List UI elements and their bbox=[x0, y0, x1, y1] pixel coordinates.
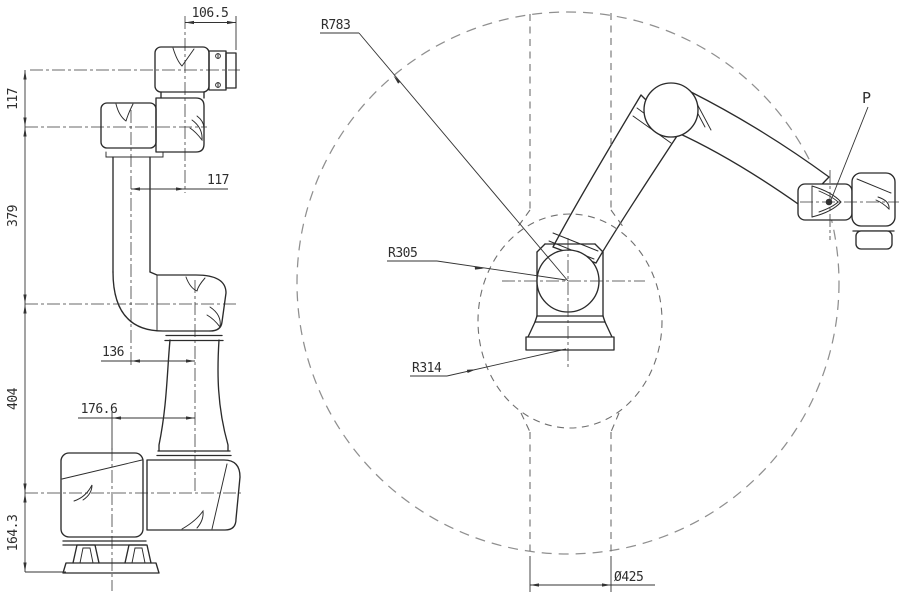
dim-label-379: 379 bbox=[6, 205, 21, 227]
label-inner-radius-upper: R305 bbox=[388, 246, 417, 261]
dim-label-176-6: 176.6 bbox=[81, 402, 118, 417]
label-tool-point: P bbox=[862, 89, 871, 107]
side-view-centerlines bbox=[25, 16, 241, 591]
side-view-forearm-link bbox=[113, 157, 150, 272]
dim-label-117-vertical: 117 bbox=[6, 88, 21, 110]
side-view: 117 379 404 164.3 106.5 117 136 bbox=[6, 6, 241, 591]
side-view-base bbox=[61, 453, 240, 573]
robot-dimension-drawing: 117 379 404 164.3 106.5 117 136 bbox=[0, 0, 900, 600]
workspace-annotations: R783 R305 R314 P Ø425 bbox=[320, 18, 871, 592]
side-view-dimensions: 117 379 404 164.3 106.5 117 136 bbox=[6, 6, 236, 572]
label-column-diameter: Ø425 bbox=[614, 570, 643, 585]
side-view-wrist3-flange bbox=[155, 47, 236, 98]
side-view-upper-arm-link bbox=[157, 340, 231, 456]
label-outer-radius: R783 bbox=[321, 18, 350, 33]
flange-screw-icon bbox=[216, 54, 221, 88]
drawing-canvas: 117 379 404 164.3 106.5 117 136 bbox=[0, 0, 900, 600]
dim-label-404: 404 bbox=[6, 387, 21, 410]
elbow-joint-circle bbox=[644, 83, 698, 137]
tool-center-point bbox=[826, 199, 833, 206]
dim-label-136: 136 bbox=[102, 345, 124, 360]
dim-label-164-3: 164.3 bbox=[6, 515, 21, 552]
dim-label-106-5: 106.5 bbox=[192, 6, 229, 21]
side-view-wrist1-wrist2 bbox=[101, 98, 204, 157]
side-view-elbow-joint bbox=[113, 272, 226, 341]
workspace-wrist bbox=[798, 173, 895, 249]
label-inner-radius-lower: R314 bbox=[412, 361, 442, 376]
workspace-view: R783 R305 R314 P Ø425 bbox=[297, 12, 899, 592]
dim-label-117-horizontal: 117 bbox=[207, 173, 229, 188]
workspace-robot bbox=[526, 83, 895, 350]
